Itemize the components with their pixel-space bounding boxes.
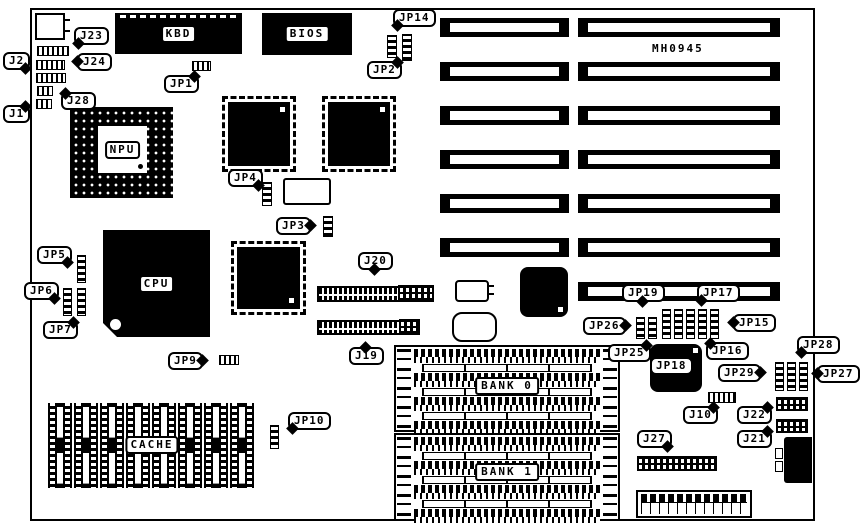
small-header <box>399 319 420 333</box>
cpu-chip: CPU <box>103 230 210 337</box>
capacitor-outline <box>452 312 497 342</box>
callout-jp19: JP19 <box>622 284 665 302</box>
expansion-slot <box>578 18 780 37</box>
npu-pin1-dot <box>138 164 143 169</box>
callout-jp14: JP14 <box>393 9 436 27</box>
callout-text: JP7 <box>49 323 72 336</box>
callout-text: JP26 <box>589 319 620 332</box>
jp19-jumper <box>662 309 671 339</box>
callout-text: J28 <box>67 94 90 107</box>
expansion-slot <box>440 150 569 169</box>
callout-text: J20 <box>364 254 387 267</box>
slot-inner <box>588 243 770 252</box>
callout-j21: J21 <box>737 430 772 448</box>
simm-socket <box>414 349 600 363</box>
oscillator-pin <box>487 285 494 287</box>
callout-text: J2 <box>9 54 24 67</box>
callout-text: JP9 <box>174 354 197 367</box>
bottom-header-connector <box>636 490 752 518</box>
bottom-header-pads <box>641 502 747 514</box>
cache-dip-socket <box>48 403 72 488</box>
jp7-jumper <box>77 288 86 316</box>
simm-gap <box>422 452 592 460</box>
jp10-jumper <box>270 425 279 449</box>
npu-label: NPU <box>105 141 141 159</box>
j24-jumper <box>36 60 65 70</box>
chip-pin1-dot <box>693 348 698 353</box>
jp2-jumper <box>402 34 412 61</box>
npu-inner: NPU <box>98 126 147 173</box>
expansion-slot <box>440 18 569 37</box>
expansion-slot <box>578 62 780 81</box>
callout-jp29: JP29 <box>718 364 761 382</box>
callout-text: JP18 <box>656 359 687 372</box>
callout-text: JP25 <box>614 346 645 359</box>
jp28-jumper <box>787 362 796 391</box>
callout-text: JP5 <box>43 248 66 261</box>
slot-inner <box>588 111 770 120</box>
jp29-jumper <box>775 362 784 391</box>
bios-chip: BIOS <box>262 13 352 55</box>
simm-socket <box>414 397 600 411</box>
keyboard-connector <box>35 13 65 40</box>
callout-jp10: JP10 <box>288 412 331 430</box>
callout-text: JP17 <box>703 286 734 299</box>
cpu-label: CPU <box>139 275 175 293</box>
callout-jp1: JP1 <box>164 75 199 93</box>
callout-text: JP27 <box>823 367 854 380</box>
callout-text: J10 <box>689 408 712 421</box>
cache-dip-socket <box>178 403 202 488</box>
kbd-chip-label: KBD <box>161 25 197 43</box>
callout-jp17: JP17 <box>697 284 740 302</box>
slot-inner <box>450 111 559 120</box>
callout-jp5: JP5 <box>37 246 72 264</box>
j21-connector <box>776 419 808 433</box>
callout-jp18: JP18 <box>650 357 693 375</box>
jp9-jumper <box>219 355 239 365</box>
expansion-slot <box>578 194 780 213</box>
oscillator <box>283 178 331 205</box>
expansion-slot <box>440 62 569 81</box>
callout-j23: J23 <box>74 27 109 45</box>
bank0-simm-group: BANK 0 <box>394 345 620 432</box>
j1-jumper <box>36 99 52 109</box>
cache-dip-socket <box>100 403 124 488</box>
callout-j24: J24 <box>77 53 112 71</box>
callout-text: J19 <box>355 349 378 362</box>
slot-inner <box>450 199 559 208</box>
callout-text: JP16 <box>712 344 743 357</box>
simm-gap <box>422 412 592 420</box>
slot-inner <box>588 155 770 164</box>
callout-j1: J1 <box>3 105 30 123</box>
jp26-jumper <box>648 317 657 339</box>
callout-jp6: JP6 <box>24 282 59 300</box>
callout-j28: J28 <box>61 92 96 110</box>
jp5-jumper <box>77 255 86 283</box>
simm-gap <box>422 500 592 508</box>
callout-j10: J10 <box>683 406 718 424</box>
callout-jp25: JP25 <box>608 344 651 362</box>
callout-text: JP4 <box>234 171 257 184</box>
qfp-pin1-dot <box>280 107 285 112</box>
callout-text: J22 <box>743 408 766 421</box>
j22-connector <box>776 397 808 411</box>
simm-gap <box>422 364 592 372</box>
qfp-chip <box>237 247 300 309</box>
cluster-jumper <box>674 309 683 339</box>
small-header <box>398 285 434 300</box>
qfp-chip <box>328 102 390 166</box>
callout-jp16: JP16 <box>706 342 749 360</box>
callout-text: JP29 <box>724 366 755 379</box>
callout-jp27: JP27 <box>817 365 860 383</box>
jp17-jumper <box>686 309 695 339</box>
chipset-chip <box>520 267 568 317</box>
bank0-label: BANK 0 <box>475 377 539 395</box>
simm-socket <box>414 509 600 523</box>
power-tab <box>775 461 783 472</box>
jp6-jumper <box>63 288 72 316</box>
expansion-slot <box>578 282 780 301</box>
bank1-simm-group: BANK 1 <box>394 433 620 521</box>
jp27-jumper <box>799 362 808 391</box>
slot-inner <box>588 287 770 296</box>
callout-text: JP14 <box>399 11 430 24</box>
callout-jp15: JP15 <box>733 314 776 332</box>
simm-latches <box>603 437 617 517</box>
callout-jp28: JP28 <box>797 336 840 354</box>
bank1-label: BANK 1 <box>475 463 539 481</box>
callout-j27: J27 <box>637 430 672 448</box>
power-connector <box>784 437 812 483</box>
board-code: MH0945 <box>652 42 704 55</box>
callout-text: JP10 <box>294 414 325 427</box>
slot-inner <box>450 23 559 32</box>
callout-text: JP15 <box>739 316 770 329</box>
qfp-pin1-dot <box>289 298 294 303</box>
qfp-chip <box>228 102 290 166</box>
expansion-slot <box>440 238 569 257</box>
expansion-slot <box>440 194 569 213</box>
slot-inner <box>588 23 770 32</box>
expansion-slot <box>440 106 569 125</box>
slot-inner <box>450 67 559 76</box>
callout-j2: J2 <box>3 52 30 70</box>
slot-inner <box>450 155 559 164</box>
cache-dip-socket <box>74 403 98 488</box>
connector-tab <box>63 30 70 32</box>
jp3-jumper <box>323 216 333 237</box>
simm-socket <box>414 437 600 451</box>
callout-jp2: JP2 <box>367 61 402 79</box>
jp14-jumper <box>387 35 397 58</box>
kbd-chip-pins <box>120 15 237 18</box>
callout-j20: J20 <box>358 252 393 270</box>
callout-j22: J22 <box>737 406 772 424</box>
j23-jumper <box>37 46 69 56</box>
callout-jp9: JP9 <box>168 352 203 370</box>
motherboard-diagram: KBD BIOS NPU CPU <box>0 0 867 527</box>
simm-latches <box>397 437 411 517</box>
callout-text: JP1 <box>170 77 193 90</box>
npu-socket: NPU <box>70 107 173 198</box>
callout-text: J21 <box>743 432 766 445</box>
bios-chip-label: BIOS <box>285 25 330 43</box>
oscillator-pin <box>487 293 494 295</box>
cache-dip-socket <box>230 403 254 488</box>
slot-inner <box>588 199 770 208</box>
j27-connector <box>637 456 717 471</box>
callout-text: JP6 <box>30 284 53 297</box>
cpu-pin1-dot <box>110 319 121 330</box>
jp26-jumper <box>636 317 645 339</box>
qfp-pin1-dot <box>380 107 385 112</box>
connector-tab <box>63 19 70 21</box>
jp16-jumper <box>698 309 707 339</box>
callout-jp4: JP4 <box>228 169 263 187</box>
expansion-slot <box>578 106 780 125</box>
callout-text: JP19 <box>628 286 659 299</box>
callout-text: J23 <box>80 29 103 42</box>
power-tab <box>775 448 783 459</box>
callout-jp7: JP7 <box>43 321 78 339</box>
chip-pin1-dot <box>558 307 563 312</box>
expansion-slot <box>578 238 780 257</box>
oscillator <box>455 280 489 302</box>
callout-text: JP2 <box>373 63 396 76</box>
callout-text: JP28 <box>803 338 834 351</box>
callout-text: J24 <box>83 55 106 68</box>
j28-jumper <box>37 86 53 96</box>
cache-dip-socket <box>204 403 228 488</box>
slot-inner <box>588 67 770 76</box>
j2-jumper <box>36 73 66 83</box>
simm-socket <box>414 485 600 499</box>
callout-text: J27 <box>643 432 666 445</box>
slot-inner <box>450 243 559 252</box>
callout-jp3: JP3 <box>276 217 311 235</box>
cache-label: CACHE <box>125 436 178 454</box>
callout-text: JP3 <box>282 219 305 232</box>
callout-j19: J19 <box>349 347 384 365</box>
simm-latches <box>397 349 411 428</box>
expansion-slot <box>578 150 780 169</box>
callout-text: J1 <box>9 107 24 120</box>
jp15-jumper <box>710 309 719 339</box>
callout-jp26: JP26 <box>583 317 626 335</box>
kbd-chip: KBD <box>115 13 242 54</box>
